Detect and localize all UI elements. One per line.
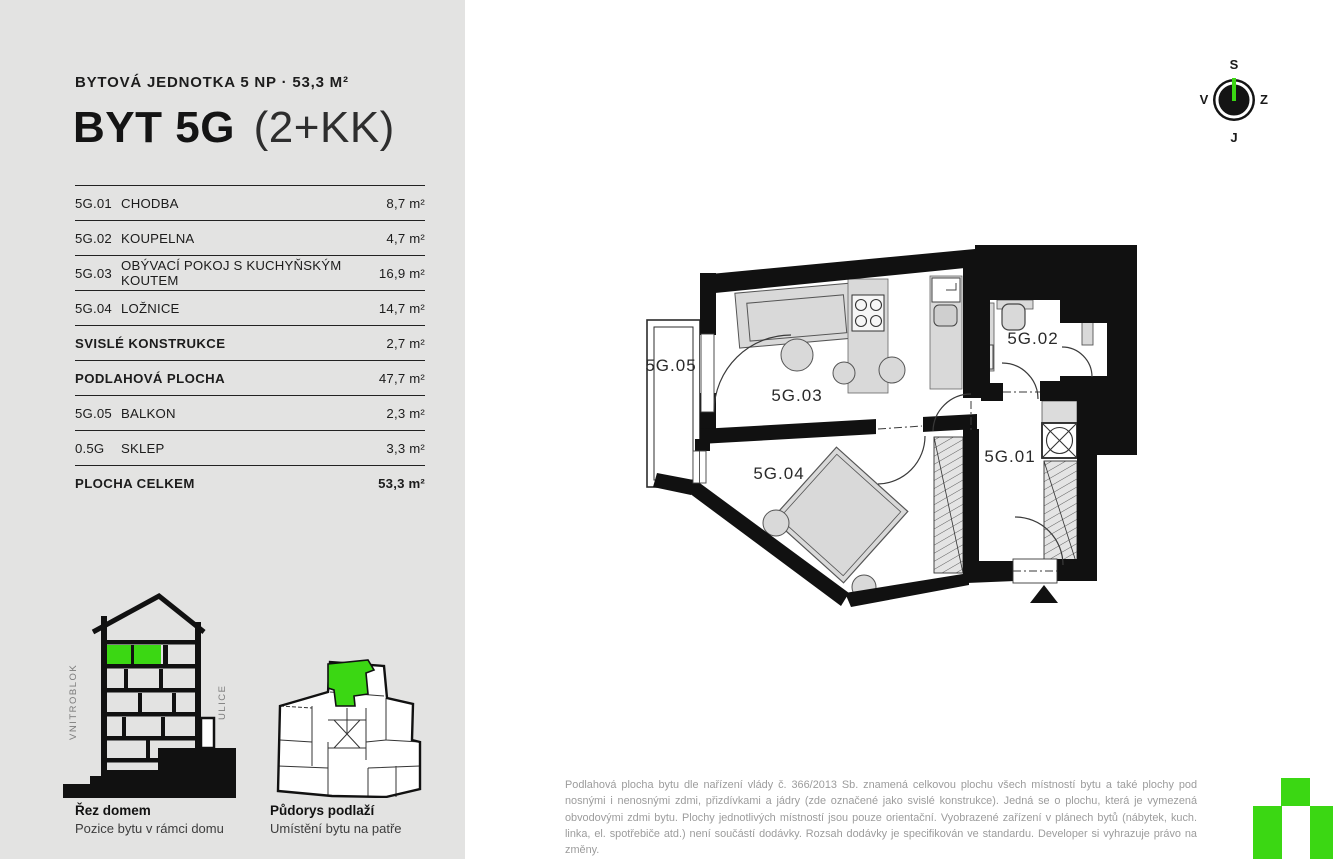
- room-name: CHODBA: [121, 196, 386, 211]
- compass-west-label: V: [1200, 92, 1209, 107]
- room-area: 2,7 m²: [386, 336, 425, 351]
- sink: [934, 305, 957, 326]
- label-ulice: ULICE: [217, 685, 228, 720]
- area-table: 5G.01 CHODBA 8,7 m² 5G.02 KOUPELNA 4,7 m…: [75, 185, 425, 500]
- floor-caption-subtitle: Umístění bytu na patře: [270, 821, 402, 836]
- table-row: 5G.04 LOŽNICE 14,7 m²: [75, 290, 425, 325]
- compass-needle: [1232, 78, 1236, 101]
- room-area: 14,7 m²: [379, 301, 425, 316]
- room-name: PLOCHA CELKEM: [75, 476, 378, 491]
- room-area: 47,7 m²: [379, 371, 425, 386]
- room-code: 5G.02: [75, 231, 121, 246]
- room-name: PODLAHOVÁ PLOCHA: [75, 371, 379, 386]
- stool: [833, 362, 855, 384]
- table-row: 0.5G SKLEP 3,3 m²: [75, 430, 425, 465]
- label-living: 5G.03: [771, 386, 822, 405]
- table-row: 5G.03 OBÝVACÍ POKOJ S KUCHYŇSKÝM KOUTEM …: [75, 255, 425, 290]
- room-code: 5G.01: [75, 196, 121, 211]
- legal-disclaimer: Podlahová plocha bytu dle nařízení vlády…: [565, 777, 1197, 859]
- room-code: 0.5G: [75, 441, 121, 456]
- floor-plan: 5G.03 5G.04 5G.01 5G.02 5G.05: [645, 243, 1165, 608]
- room-area: 3,3 m²: [386, 441, 425, 456]
- floor-position-drawing: [268, 648, 438, 798]
- room-name: BALKON: [121, 406, 386, 421]
- room-code: 5G.03: [75, 266, 121, 281]
- unit-code: BYT 5G: [73, 103, 235, 152]
- room-area: 2,3 m²: [386, 406, 425, 421]
- compass-rose: S V Z J: [1195, 52, 1273, 148]
- room-area: 4,7 m²: [386, 231, 425, 246]
- label-bedroom: 5G.04: [753, 464, 804, 483]
- floor-caption-title: Půdorys podlaží: [270, 803, 402, 818]
- room-name: OBÝVACÍ POKOJ S KUCHYŇSKÝM KOUTEM: [121, 258, 379, 288]
- room-name: LOŽNICE: [121, 301, 379, 316]
- radiator: [1082, 321, 1093, 345]
- label-vnitroblok: VNITROBLOK: [68, 664, 79, 740]
- room-code: 5G.04: [75, 301, 121, 316]
- developer-logo: [1253, 778, 1333, 859]
- wardrobe-bedroom: [934, 437, 963, 573]
- entrance-arrow: [1030, 585, 1058, 603]
- sidebar: BYTOVÁ JEDNOTKA 5 NP · 53,3 M² BYT 5G (2…: [0, 0, 465, 859]
- round-table: [781, 339, 813, 371]
- unit-layout: (2+KK): [254, 103, 395, 152]
- room-name: KOUPELNA: [121, 231, 386, 246]
- floor-caption: Půdorys podlaží Umístění bytu na patře: [270, 803, 402, 836]
- label-hallway: 5G.01: [984, 447, 1035, 466]
- floor-position-diagram: [268, 648, 438, 798]
- unit-subtitle: BYTOVÁ JEDNOTKA 5 NP · 53,3 M²: [75, 74, 349, 91]
- page-title: BYT 5G (2+KK): [73, 103, 395, 153]
- sofa: [735, 283, 857, 348]
- nightstand: [763, 510, 789, 536]
- table-row: 5G.02 KOUPELNA 4,7 m²: [75, 220, 425, 255]
- apartment-sheet: BYTOVÁ JEDNOTKA 5 NP · 53,3 M² BYT 5G (2…: [0, 0, 1333, 859]
- duct-shaft: [1042, 401, 1077, 458]
- compass-north-label: S: [1230, 57, 1239, 72]
- section-caption-subtitle: Pozice bytu v rámci domu: [75, 821, 224, 836]
- room-area: 53,3 m²: [378, 476, 425, 491]
- label-balcony: 5G.05: [645, 356, 696, 375]
- roof-line: [93, 596, 204, 632]
- table-row: 5G.05 BALKON 2,3 m²: [75, 395, 425, 430]
- room-name: SVISLÉ KONSTRUKCE: [75, 336, 386, 351]
- bedroom-window: [693, 451, 706, 483]
- table-row: PODLAHOVÁ PLOCHA 47,7 m²: [75, 360, 425, 395]
- building-section-diagram: VNITROBLOK ULICE: [60, 588, 240, 800]
- compass-east-label: Z: [1260, 92, 1268, 107]
- section-caption-title: Řez domem: [75, 803, 224, 818]
- room-name: SKLEP: [121, 441, 386, 456]
- room-area: 8,7 m²: [386, 196, 425, 211]
- stool: [879, 357, 905, 383]
- balcony-outline: [647, 320, 700, 487]
- section-caption: Řez domem Pozice bytu v rámci domu: [75, 803, 224, 836]
- room-code: 5G.05: [75, 406, 121, 421]
- kitchen-counter: [930, 276, 962, 389]
- room-area: 16,9 m²: [379, 266, 425, 281]
- label-bathroom: 5G.02: [1007, 329, 1058, 348]
- table-row: SVISLÉ KONSTRUKCE 2,7 m²: [75, 325, 425, 360]
- building-section-drawing: VNITROBLOK ULICE: [60, 588, 240, 800]
- table-row: PLOCHA CELKEM 53,3 m²: [75, 465, 425, 500]
- compass-south-label: J: [1230, 130, 1237, 145]
- table-row: 5G.01 CHODBA 8,7 m²: [75, 185, 425, 220]
